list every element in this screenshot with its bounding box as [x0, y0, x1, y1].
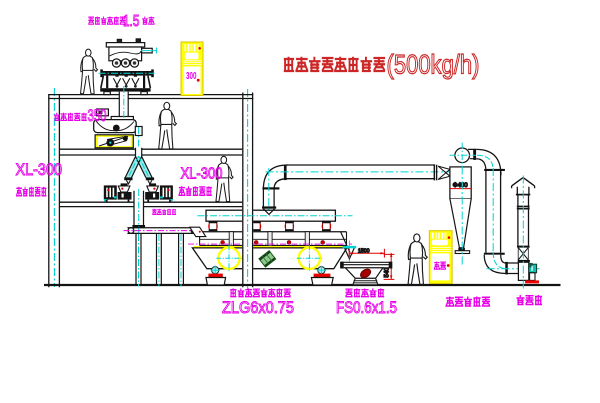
svg-text:FS0.6x1.5: FS0.6x1.5: [336, 299, 397, 317]
svg-text:(500kg/h): (500kg/h): [387, 50, 480, 80]
svg-text:300: 300: [186, 71, 197, 82]
svg-text:1500: 1500: [358, 248, 370, 254]
svg-text:540: 540: [385, 267, 391, 278]
svg-text:XL-300: XL-300: [181, 166, 223, 183]
svg-text:ZLG6x0.75: ZLG6x0.75: [222, 299, 294, 317]
svg-text:XL-300: XL-300: [16, 161, 63, 179]
svg-text:350: 350: [88, 106, 107, 125]
svg-text:1.5: 1.5: [123, 13, 139, 30]
